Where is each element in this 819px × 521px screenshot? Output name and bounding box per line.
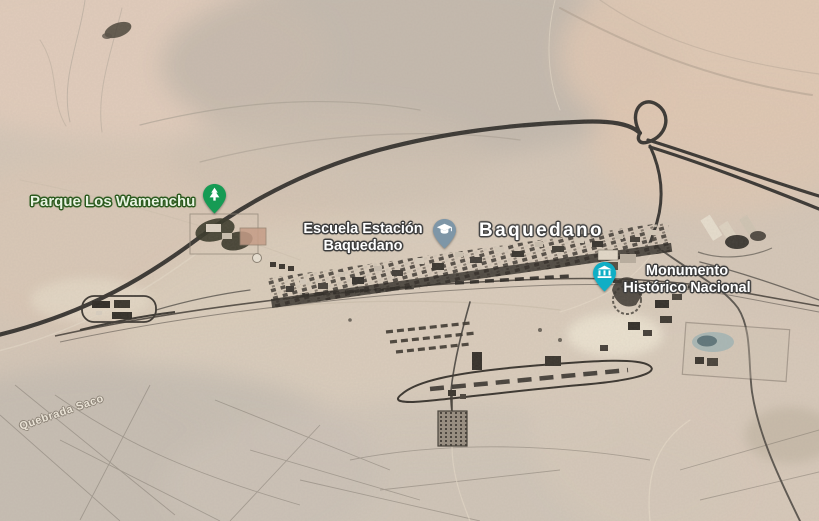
- park-pin[interactable]: [202, 183, 227, 215]
- school-pin[interactable]: [432, 218, 457, 250]
- locality-label-baquedano[interactable]: Baquedano: [479, 220, 604, 242]
- poi-label-escuela-estacion-baquedano[interactable]: Escuela Estación Baquedano: [303, 221, 422, 254]
- poi-label-line1: Monumento: [623, 263, 750, 280]
- satellite-terrain: [0, 0, 819, 521]
- museum-pin[interactable]: [592, 261, 617, 293]
- poi-label-parque-los-wamenchu[interactable]: Parque Los Wamenchu: [30, 193, 195, 210]
- grain-overlay: [0, 0, 819, 521]
- poi-label-line1: Escuela Estación: [303, 221, 422, 238]
- satellite-map-canvas[interactable]: Parque Los Wamenchu Escuela Estación Baq…: [0, 0, 819, 521]
- pin-body: [433, 219, 456, 249]
- poi-label-monumento-historico-nacional[interactable]: Monumento Histórico Nacional: [623, 263, 750, 296]
- poi-label-line2: Baquedano: [303, 238, 422, 255]
- poi-label-line2: Histórico Nacional: [623, 280, 750, 297]
